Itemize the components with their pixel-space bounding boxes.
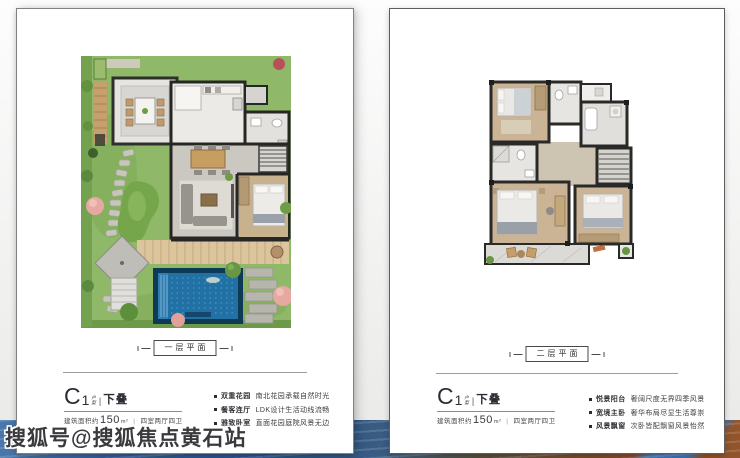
floor-plan-level2-svg <box>471 76 641 266</box>
badge-tick-right <box>232 346 233 351</box>
area-separator: | <box>506 419 508 426</box>
bullet-square-icon <box>589 411 592 414</box>
unit-type-stack: 户 型 <box>91 395 96 405</box>
feature-item: 宽境主卧 奢华布局尽显生活尊崇 <box>589 408 705 418</box>
feature-head: 餐客连厅 <box>221 405 251 415</box>
feature-head: 悦景阳台 <box>596 394 626 404</box>
unit-underline <box>64 411 182 412</box>
section-divider <box>63 372 307 373</box>
staircase <box>597 148 631 184</box>
unit-underline <box>437 411 555 412</box>
feature-item: 双重花园 南北花园承载自然时光 <box>214 391 330 401</box>
stone-path-right <box>245 268 277 323</box>
brochure-page-floor1: 一层平面 C 1 户 型 | 下叠 建筑面积约 150 m² | 四室两厅四卫 … <box>16 8 354 454</box>
unit-title: C 1 户 型 | 下叠 <box>437 387 555 407</box>
feature-desc: 次卧皆配飘窗风景怡然 <box>631 421 705 431</box>
feature-desc: 南北花园承载自然时光 <box>256 391 330 401</box>
area-value: 150 <box>473 416 493 426</box>
plan-level-label: 二层平面 <box>526 346 589 362</box>
corridor <box>537 142 599 186</box>
feature-item: 悦景阳台 奢阔尺度无界四季风景 <box>589 394 705 404</box>
brochure-page-floor2: 二层平面 C 1 户 型 | 下叠 建筑面积约 150 m² | 四室两厅四卫 … <box>389 8 725 454</box>
badge-line-left <box>514 354 523 355</box>
kitchen-room <box>171 82 245 144</box>
feature-item: 餐客连厅 LDK设计生活动线流畅 <box>214 405 330 415</box>
unit-type-stack: 户 型 <box>464 395 469 405</box>
bathroom-mid-left <box>491 144 537 182</box>
unit-title-block: C 1 户 型 | 下叠 建筑面积约 150 m² | 四室两厅四卫 <box>437 387 555 425</box>
wood-deck <box>137 240 289 264</box>
floor-plan-level2-image <box>471 76 641 266</box>
unit-title: C 1 户 型 | 下叠 <box>64 387 182 407</box>
unit-number: 1 <box>82 393 90 407</box>
unit-suffix: 下叠 <box>476 395 501 407</box>
area-layout: 四室两厅四卫 <box>513 419 555 426</box>
bedroom-right <box>575 186 631 244</box>
floor-plan-level1-svg <box>81 56 291 331</box>
unit-number: 1 <box>455 393 463 407</box>
bedroom-top-left <box>491 82 549 142</box>
watermark-text: 搜狐号@搜狐焦点黄石站 <box>5 422 246 452</box>
badge-line-right <box>220 348 229 349</box>
plan-level-label: 一层平面 <box>154 340 217 356</box>
balcony <box>485 244 633 264</box>
feature-list: 悦景阳台 奢阔尺度无界四季风景 宽境主卧 奢华布局尽显生活尊崇 风景飘窗 次卧皆… <box>589 394 705 435</box>
floor-plan-level1-image <box>81 56 291 331</box>
feature-desc: 直面花园庭院风景无边 <box>256 418 330 428</box>
badge-line-right <box>592 354 601 355</box>
bullet-square-icon <box>589 425 592 428</box>
unit-suffix: 下叠 <box>103 395 128 407</box>
feature-desc: 奢华布局尽显生活尊崇 <box>631 408 705 418</box>
section-divider <box>436 373 678 374</box>
area-unit: m² <box>494 420 501 426</box>
bullet-square-icon <box>214 408 217 411</box>
bullet-square-icon <box>589 398 592 401</box>
plan-level-badge: 二层平面 <box>510 346 605 362</box>
plan-level-badge: 一层平面 <box>138 340 233 356</box>
badge-line-left <box>142 348 151 349</box>
unit-stack-bottom: 型 <box>464 400 469 405</box>
bathroom-top-right <box>581 84 627 146</box>
unit-divider: | <box>99 397 101 406</box>
bathroom-top <box>549 82 581 124</box>
master-bedroom <box>491 182 569 246</box>
unit-title-block: C 1 户 型 | 下叠 建筑面积约 150 m² | 四室两厅四卫 <box>64 387 182 425</box>
unit-divider: | <box>472 397 474 406</box>
feature-head: 双重花园 <box>221 391 251 401</box>
garden-pavilion <box>113 78 177 144</box>
feature-head: 风景飘窗 <box>596 421 626 431</box>
unit-prefix: C <box>437 387 454 407</box>
unit-stack-bottom: 型 <box>91 400 96 405</box>
area-label: 建筑面积约 <box>437 419 472 426</box>
feature-head: 宽境主卧 <box>596 408 626 418</box>
unit-area-line: 建筑面积约 150 m² | 四室两厅四卫 <box>437 416 555 426</box>
badge-tick-left <box>510 352 511 357</box>
feature-desc: 奢阔尺度无界四季风景 <box>631 394 705 404</box>
feature-desc: LDK设计生活动线流畅 <box>256 405 330 415</box>
feature-item: 风景飘窗 次卧皆配飘窗风景怡然 <box>589 421 705 431</box>
bullet-square-icon <box>214 395 217 398</box>
unit-prefix: C <box>64 387 81 407</box>
badge-tick-left <box>138 346 139 351</box>
badge-tick-right <box>604 352 605 357</box>
